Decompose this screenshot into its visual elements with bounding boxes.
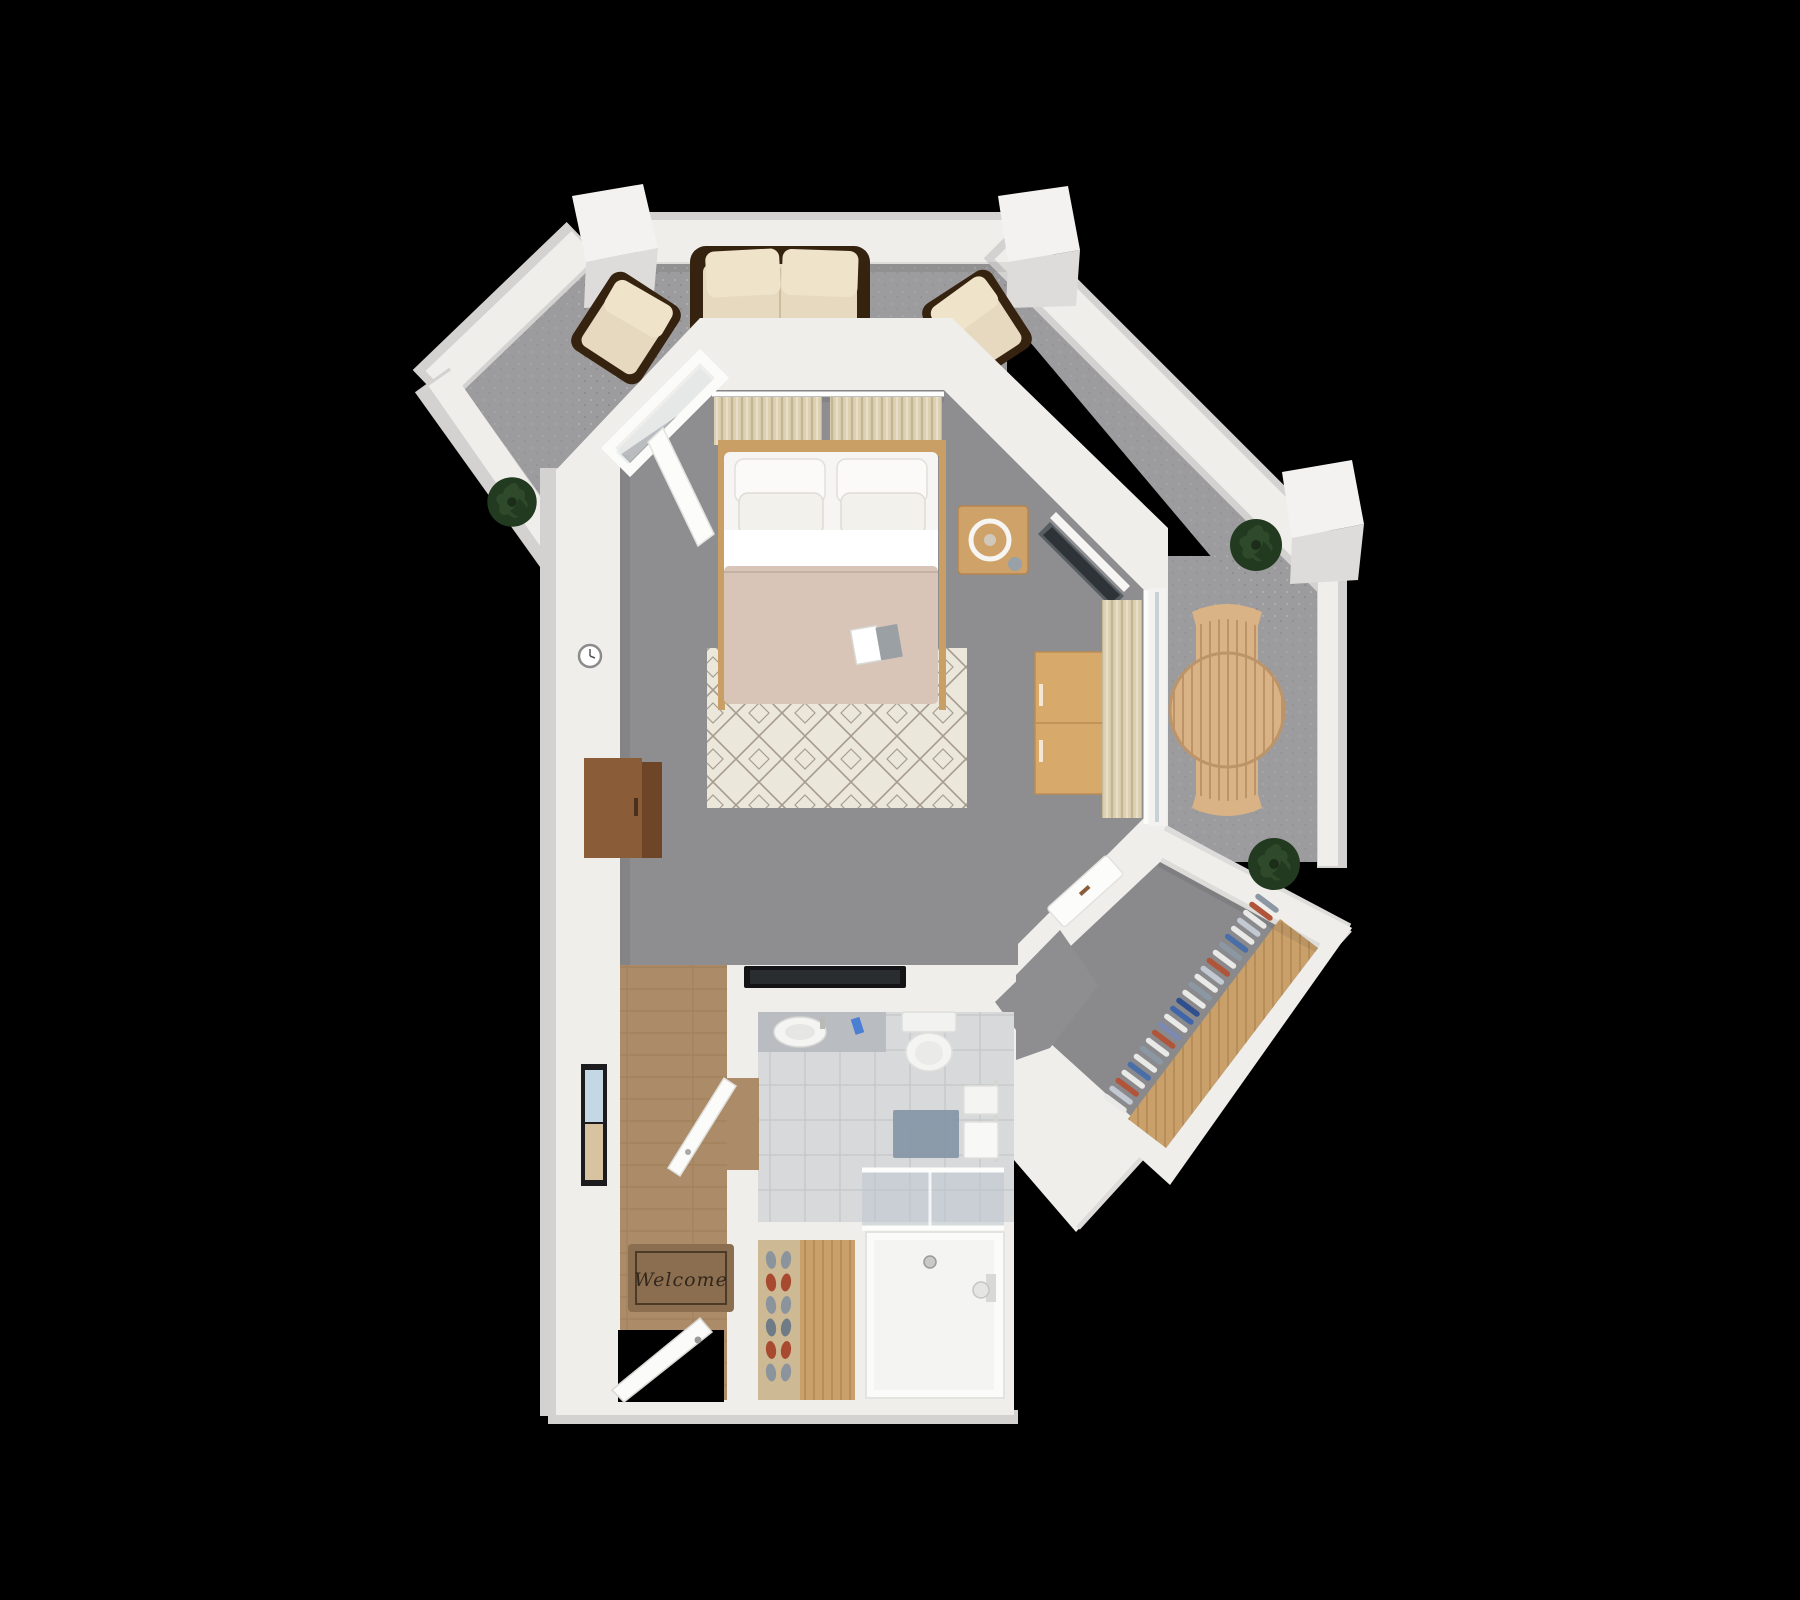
floorplan-3d-render: Welcome [0,0,1800,1600]
toilet [902,1012,956,1071]
pillow [841,493,925,535]
vase [1008,557,1022,571]
welcome-mat-text: Welcome [634,1269,728,1291]
pillow [739,493,823,535]
patio-pillar-right [1282,460,1364,584]
wall-art-frame [581,1064,607,1186]
shower-drain [924,1256,936,1268]
vanity-sink [758,1012,886,1052]
outdoor-round-table [1170,653,1284,767]
bed-sheet [724,530,938,570]
bath-mat [893,1110,959,1158]
floorplan-canvas: Welcome [0,0,1800,1600]
double-bed [718,440,946,710]
shower [862,1168,1004,1398]
wall-clock [579,645,601,667]
welcome-mat: Welcome [628,1244,734,1312]
potted-plant-patio-left [487,477,536,526]
faucet [820,1016,825,1029]
patio-pillar-top-right [998,186,1080,308]
nightstand [958,506,1028,574]
potted-plant-patio-right [1230,519,1282,571]
shower-glass-door [862,1168,1004,1230]
sliding-door [1102,588,1166,826]
wall-tv [744,966,906,988]
dresser [1035,652,1113,794]
front-door [612,1318,724,1402]
storage-cabinet [584,758,662,858]
potted-plant-patio-south [1248,838,1300,890]
duvet [724,566,938,704]
shoe-closet [758,1240,855,1400]
